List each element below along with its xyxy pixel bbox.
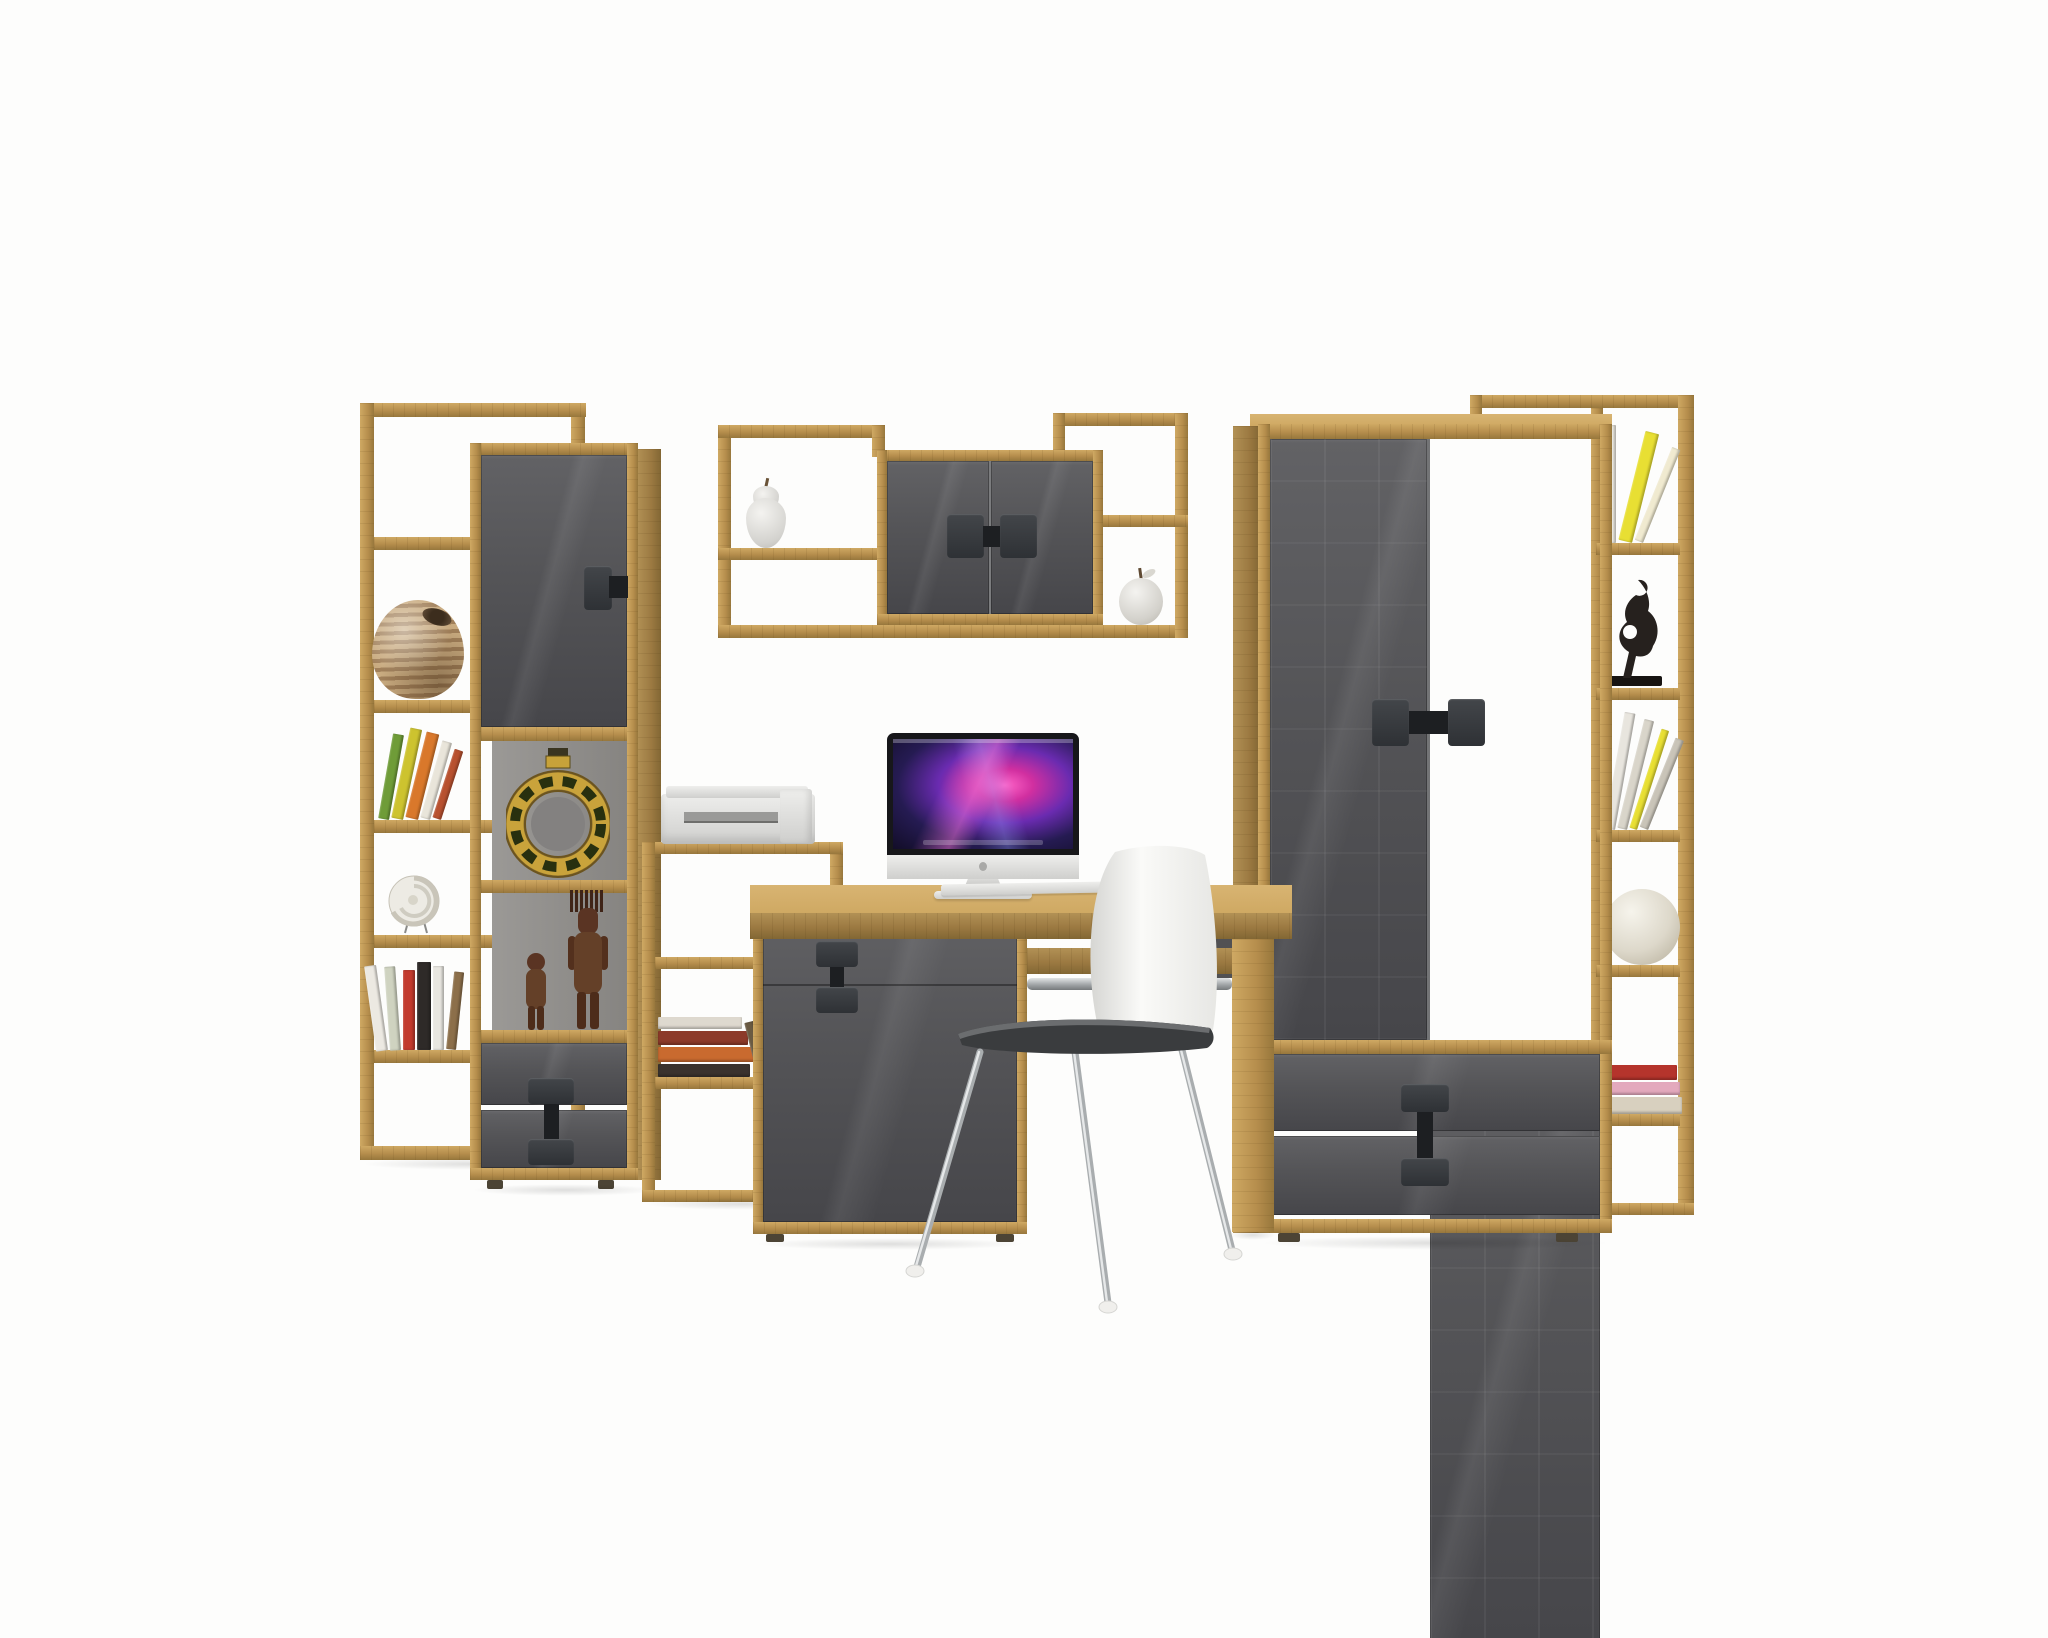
left-cabinet-frame-right xyxy=(627,443,638,1180)
wall-cabinet-handle-stem xyxy=(983,526,1001,547)
white-sphere-ornament xyxy=(1604,889,1680,965)
wall-cabinet-frame-right xyxy=(1093,450,1103,625)
door-handle xyxy=(584,566,612,610)
right-shelf-top-board xyxy=(1470,395,1694,408)
wall-shelf-bottom-board xyxy=(718,625,1188,638)
leaning-books xyxy=(378,726,466,820)
wall-shelf-top-right-board xyxy=(1053,413,1188,426)
desk-cabinet-handle-pad xyxy=(816,941,858,967)
left-cabinet-top xyxy=(470,443,638,455)
leaning-books xyxy=(1604,712,1678,830)
wardrobe-drawer-handle-pad xyxy=(1401,1084,1449,1112)
chair-legs xyxy=(906,1042,1242,1313)
wall-cabinet-handle-pad xyxy=(1000,514,1037,558)
wall-shelf-right-cap xyxy=(1053,413,1065,453)
printer-side-tower xyxy=(780,789,812,843)
wall-cabinet-bottom xyxy=(877,614,1103,625)
wardrobe-frame-top xyxy=(1258,424,1612,439)
small-wood-figurine xyxy=(518,953,554,1031)
book-stack xyxy=(658,1016,758,1077)
printer-slot xyxy=(684,812,778,823)
floor-shadow xyxy=(472,1184,658,1196)
wardrobe-door-seam xyxy=(1427,439,1430,1040)
left-cabinet-frame-left xyxy=(470,443,481,1180)
shelf-board xyxy=(481,727,627,741)
wall-cabinet-top xyxy=(877,450,1103,461)
wardrobe-handle-pad xyxy=(1448,699,1485,746)
wall-shelf-left-side xyxy=(718,425,731,638)
desk-cabinet-frame-left xyxy=(753,892,763,1234)
leaning-books xyxy=(1604,425,1678,543)
tall-wood-figurine xyxy=(564,890,612,1031)
shelf-board xyxy=(718,548,885,560)
wall-cabinet-handle-pad xyxy=(947,514,984,558)
stand-left-side xyxy=(642,842,655,1202)
product-photo-furniture-set: Product photo on white background: moder… xyxy=(0,0,2048,1638)
wardrobe-handle-pad xyxy=(1372,699,1409,746)
drawer-handle-pad xyxy=(528,1139,574,1165)
door-handle-tab xyxy=(609,576,628,598)
wall-cabinet-frame-left xyxy=(877,450,887,625)
ring-vase-ornament xyxy=(506,748,610,880)
imac-menu-bar xyxy=(893,739,1073,743)
wardrobe-drawer-handle-stem xyxy=(1417,1112,1433,1158)
wardrobe-handle-stem xyxy=(1409,711,1448,734)
black-figure-sculpture xyxy=(1608,576,1664,688)
shelf-board xyxy=(481,1030,627,1043)
spiral-shell-ornament xyxy=(380,872,448,935)
chair-backrest xyxy=(1090,846,1217,1041)
book-stack xyxy=(1602,1064,1684,1114)
chair xyxy=(880,830,1340,1330)
drawer-handle-stem xyxy=(544,1104,559,1139)
desk-cabinet-handle-stem xyxy=(830,967,844,987)
left-cabinet-bottom xyxy=(470,1168,638,1180)
wardrobe-drawer-handle-pad xyxy=(1401,1158,1449,1186)
wardrobe-frame-right xyxy=(1600,424,1612,1233)
striped-vase-ornament xyxy=(372,600,464,699)
drawer-handle-pad xyxy=(528,1078,574,1104)
wall-shelf-top-left-board xyxy=(718,425,885,438)
left-shelf-top-board xyxy=(360,403,586,417)
book-row xyxy=(376,962,472,1050)
desk-cabinet-handle-pad xyxy=(816,987,858,1013)
left-shelf-left-side xyxy=(360,403,374,1160)
